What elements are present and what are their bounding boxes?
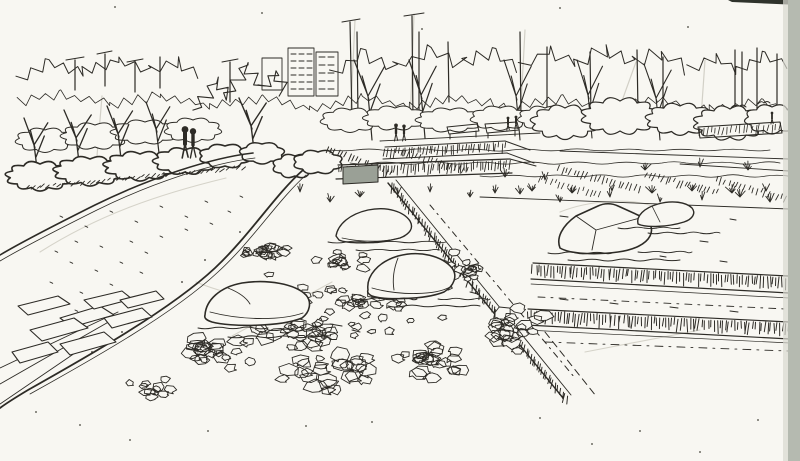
sketch-mark [181,281,183,283]
sketch-mark [114,6,116,8]
sketch-mark [783,0,788,461]
sketch-mark [204,259,206,261]
sketch-mark [261,12,263,14]
sketch-mark [699,451,701,453]
sketch-page: Landscape concept sketch Hand-drawn ink … [0,0,800,461]
sketch-mark [207,430,209,432]
sketch-mark [79,424,81,426]
sketch-mark [371,421,373,423]
sketch-mark [591,443,593,445]
sketch-mark [35,411,37,413]
sketch-mark [757,419,759,421]
sketch-mark [687,26,689,28]
sketch-mark [343,165,378,184]
sketch-mark [539,417,541,419]
sketch-canvas: Landscape concept sketch [0,0,800,461]
sketch-mark [788,0,800,461]
sketch-mark [305,425,307,427]
sketch-mark [421,28,423,30]
sketch-mark [559,7,561,9]
sketch-mark [121,331,123,333]
sketch-mark [239,231,241,233]
sketch-mark [129,439,131,441]
sketch-mark [639,430,641,432]
